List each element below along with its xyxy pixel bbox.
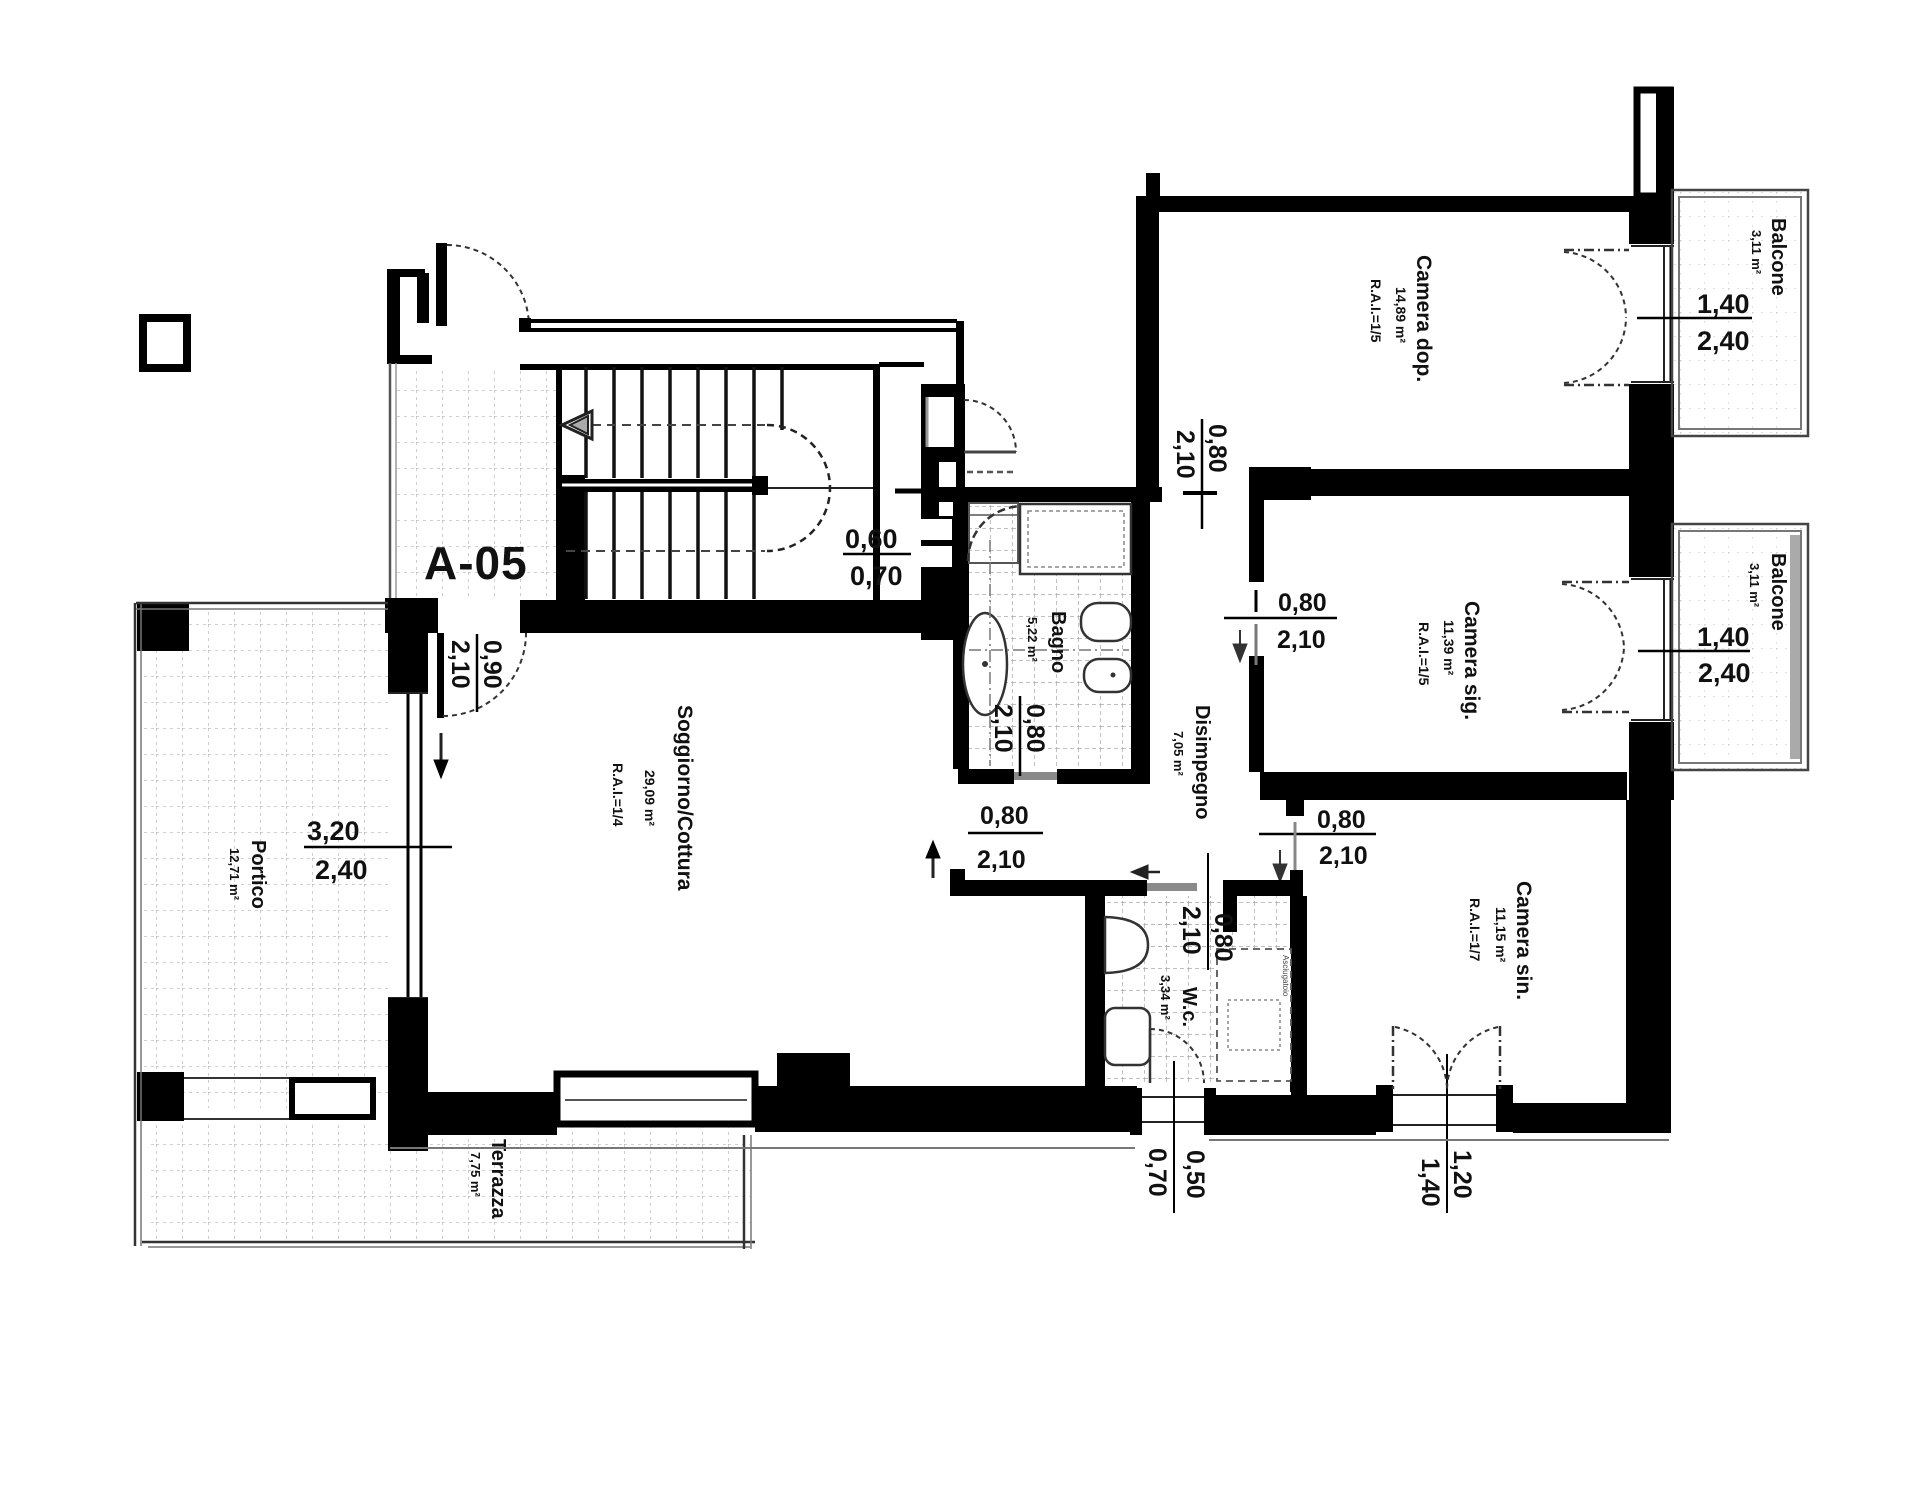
svg-text:0,80: 0,80: [980, 802, 1029, 830]
svg-text:0,70: 0,70: [850, 561, 903, 591]
svg-text:Terrazza: Terrazza: [487, 1139, 509, 1220]
svg-text:R.A.I.=1/7: R.A.I.=1/7: [1467, 898, 1483, 962]
svg-text:29,09 m²: 29,09 m²: [642, 770, 658, 826]
svg-text:1,40: 1,40: [1416, 1158, 1444, 1207]
svg-text:2,10: 2,10: [977, 846, 1026, 874]
svg-text:0,90: 0,90: [478, 640, 506, 689]
svg-text:Camera sig.: Camera sig.: [1460, 601, 1483, 720]
svg-text:Soggiorno/Cottura: Soggiorno/Cottura: [673, 705, 696, 891]
svg-text:2,40: 2,40: [1697, 326, 1750, 356]
svg-text:Disimpegno: Disimpegno: [1191, 705, 1213, 819]
svg-text:2,10: 2,10: [1171, 430, 1199, 479]
svg-text:3,20: 3,20: [307, 816, 360, 846]
svg-text:0,80: 0,80: [1317, 806, 1366, 834]
svg-text:12,71 m²: 12,71 m²: [227, 848, 242, 901]
svg-text:14,89 m²: 14,89 m²: [1393, 287, 1409, 343]
svg-text:2,40: 2,40: [315, 855, 368, 885]
svg-text:3,11 m²: 3,11 m²: [1749, 230, 1764, 275]
svg-text:5,22 m²: 5,22 m²: [1025, 617, 1040, 662]
svg-text:A-05: A-05: [424, 537, 528, 589]
svg-text:2,10: 2,10: [1319, 842, 1368, 870]
svg-text:1,40: 1,40: [1697, 289, 1750, 319]
svg-text:Balcone: Balcone: [1767, 218, 1789, 296]
svg-text:2,10: 2,10: [1177, 906, 1205, 955]
svg-text:Portico: Portico: [247, 840, 269, 909]
svg-text:0,80: 0,80: [1021, 704, 1049, 753]
svg-text:0,60: 0,60: [845, 524, 898, 554]
svg-text:0,50: 0,50: [1181, 1150, 1209, 1199]
svg-text:3,34 m²: 3,34 m²: [1158, 975, 1173, 1020]
svg-text:Asciugatoio: Asciugatoio: [1281, 955, 1290, 997]
svg-text:2,10: 2,10: [446, 640, 474, 689]
svg-text:0,80: 0,80: [1209, 913, 1237, 962]
svg-text:7,05 m²: 7,05 m²: [1171, 731, 1186, 776]
svg-text:2,10: 2,10: [1277, 626, 1326, 654]
svg-text:0,70: 0,70: [1143, 1148, 1171, 1197]
svg-text:0,80: 0,80: [1278, 589, 1327, 617]
svg-text:2,10: 2,10: [989, 704, 1017, 753]
svg-text:3,11 m²: 3,11 m²: [1747, 563, 1762, 608]
svg-text:Balcone: Balcone: [1767, 553, 1789, 631]
svg-text:W.c.: W.c.: [1178, 987, 1200, 1027]
svg-text:R.A.I.=1/5: R.A.I.=1/5: [1416, 622, 1432, 686]
svg-text:R.A.I.=1/4: R.A.I.=1/4: [610, 763, 626, 827]
svg-text:R.A.I.=1/5: R.A.I.=1/5: [1368, 279, 1384, 343]
svg-text:1,40: 1,40: [1697, 622, 1750, 652]
svg-text:1,20: 1,20: [1448, 1150, 1476, 1199]
svg-text:Bagno: Bagno: [1047, 611, 1069, 673]
svg-text:11,15 m²: 11,15 m²: [1493, 907, 1509, 963]
svg-text:2,40: 2,40: [1698, 658, 1751, 688]
svg-text:11,39 m²: 11,39 m²: [1441, 620, 1457, 676]
svg-text:Camera dop.: Camera dop.: [1412, 255, 1435, 382]
svg-text:7,75 m²: 7,75 m²: [468, 1152, 483, 1197]
svg-text:0,80: 0,80: [1203, 424, 1231, 473]
svg-text:Camera sin.: Camera sin.: [1512, 881, 1535, 1000]
